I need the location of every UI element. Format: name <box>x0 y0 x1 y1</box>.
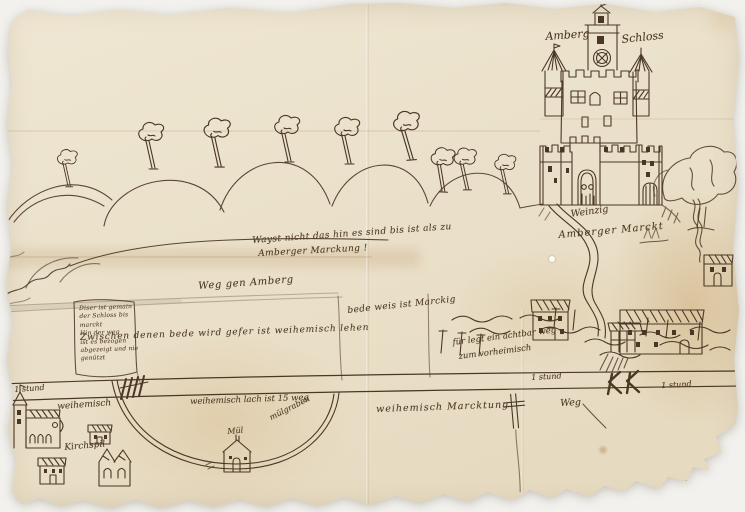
paper: Amberg Schloss Wayst nicht das hin es si… <box>0 0 745 512</box>
label-distance-3: 1 stund <box>661 379 692 390</box>
screenshot: Amberg Schloss Wayst nicht das hin es si… <box>0 0 745 512</box>
weir <box>600 322 642 372</box>
flourishes <box>583 240 668 428</box>
mill-house <box>206 435 251 472</box>
riverside-long-building <box>620 310 704 354</box>
castle-keep <box>561 70 638 143</box>
castle-clock-tower <box>585 1 620 70</box>
road-to-amberg-lines <box>2 293 342 312</box>
large-tree <box>653 146 736 230</box>
label-road-note: Weg <box>560 397 581 409</box>
village-house-hatched <box>38 458 66 484</box>
church <box>13 385 63 448</box>
right-bank-house <box>704 255 733 286</box>
ink-drawing <box>0 0 745 512</box>
paper-sheet: Amberg Schloss Wayst nicht das hin es si… <box>0 0 745 512</box>
label-distance-2: 1 stund <box>531 371 562 382</box>
label-mill: Mül <box>227 426 244 436</box>
ink-stain-spot <box>680 480 694 490</box>
village-house-double-gable <box>99 449 131 486</box>
tree-row <box>57 110 516 193</box>
bridge-marks <box>608 371 639 394</box>
marginal-box-text: Diser ist gemain der Schloss bis marckt … <box>79 303 137 364</box>
right-path <box>693 199 702 262</box>
